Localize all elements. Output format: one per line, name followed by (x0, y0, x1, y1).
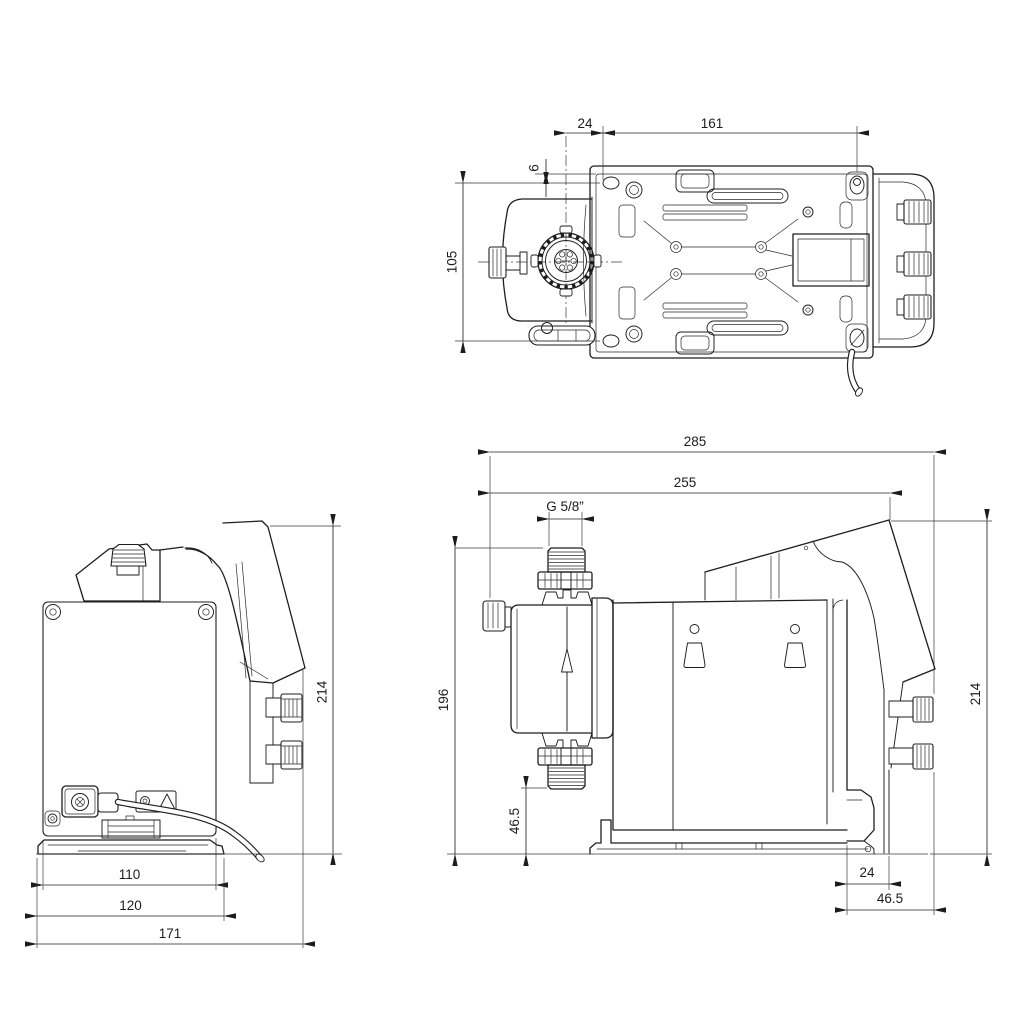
side-gland-2 (889, 744, 933, 769)
power-cable-top (850, 352, 864, 397)
dim-rear-120: 120 (119, 898, 142, 913)
vent-valve-knob-top (489, 247, 527, 278)
dim-side-196: 196 (436, 689, 451, 712)
rear-view: 214 110 120 171 (36, 521, 342, 948)
mounting-foot (847, 790, 874, 854)
top-view: 24 161 6 105 (445, 116, 935, 397)
dim-rear-110: 110 (119, 867, 141, 882)
side-gland-1 (889, 697, 933, 722)
side-view-control-panel (705, 520, 935, 853)
drawing-canvas: 24 161 6 105 (0, 0, 1024, 1024)
dim-side-46-5-bracket: 46.5 (877, 891, 903, 906)
hv-connector (111, 545, 146, 576)
side-view-housing (613, 599, 874, 854)
dim-top-161: 161 (701, 116, 724, 131)
dim-rear-214: 214 (315, 680, 330, 703)
cable-gland-2 (897, 252, 931, 276)
rear-view-top-cover (76, 544, 212, 601)
flow-direction-arrow-icon (562, 607, 573, 731)
rear-knob-1 (266, 694, 302, 722)
dim-rear-171: 171 (159, 926, 182, 941)
side-view: 285 255 G 5/8” 196 46.5 214 24 46.5 (436, 434, 992, 915)
rear-view-base-tray (38, 840, 224, 854)
side-view-base-tray (590, 820, 868, 854)
dim-top-24: 24 (577, 116, 593, 131)
dim-side-214: 214 (968, 682, 983, 705)
rear-knob-2 (266, 741, 302, 769)
dim-side-285: 285 (684, 434, 707, 449)
top-view-pump-head (489, 197, 601, 345)
dim-side-255: 255 (674, 475, 697, 490)
technical-drawing: 24 161 6 105 (0, 0, 1024, 1024)
top-view-baseplate (590, 166, 873, 358)
dim-side-thread: G 5/8” (546, 499, 584, 514)
rear-view-mounting-plate (43, 602, 266, 863)
dim-side-24: 24 (859, 865, 875, 880)
side-view-dosing-head (483, 548, 613, 789)
cable-gland-1 (897, 200, 931, 224)
dim-top-6: 6 (527, 164, 542, 172)
tube-clamp-top (529, 323, 595, 346)
suction-thread (548, 548, 585, 572)
cable-gland-3 (897, 295, 931, 319)
vent-valve-knob-side (483, 601, 505, 631)
dim-side-46-5-suction: 46.5 (507, 808, 522, 834)
dim-top-105: 105 (445, 251, 460, 274)
